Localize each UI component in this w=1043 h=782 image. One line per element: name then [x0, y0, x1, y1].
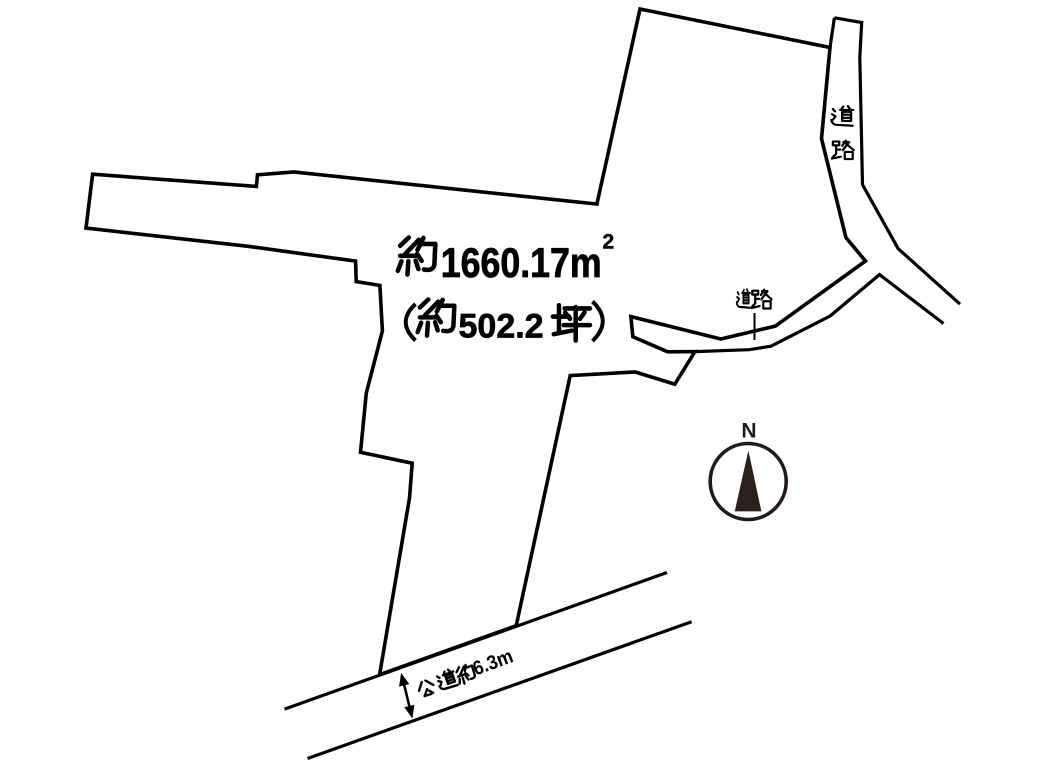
svg-text:502.2: 502.2: [459, 307, 544, 345]
svg-text:1660.17m: 1660.17m: [441, 239, 602, 286]
svg-text:N: N: [741, 420, 756, 443]
svg-text:2: 2: [603, 230, 615, 253]
svg-text:6.3m: 6.3m: [470, 645, 516, 680]
